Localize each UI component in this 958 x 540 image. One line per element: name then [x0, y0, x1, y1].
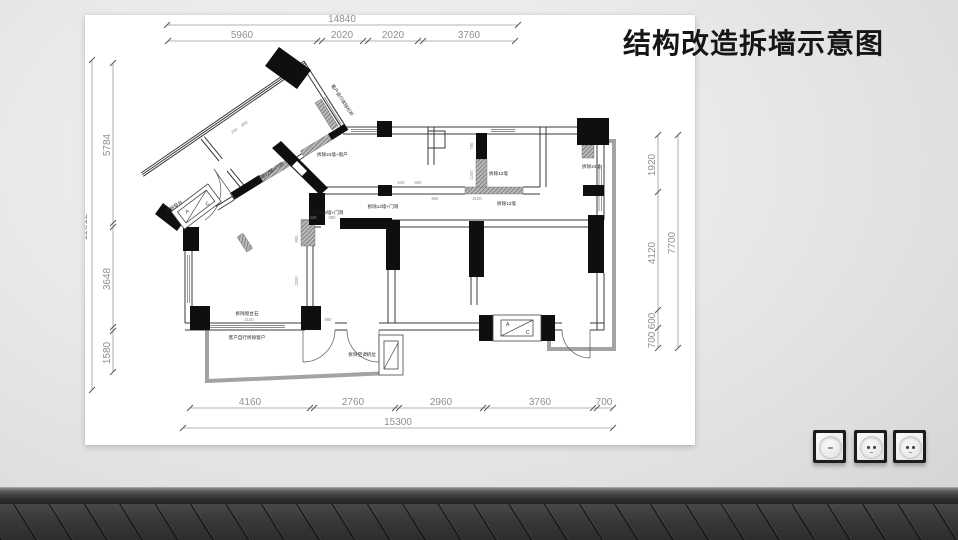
dim-left-total: 11012: [85, 213, 90, 241]
floor-plan-drawing: 14840 5960 2020 2020 3760 11012 5784 364…: [85, 15, 695, 445]
annotation-demolish-24: 拆除24墙: [582, 163, 601, 170]
dim-bottom-seg: 2960: [430, 397, 453, 408]
baseboard: [0, 487, 958, 504]
annotation-demolish-12: 拆除12墙: [489, 170, 508, 177]
dim-bottom-seg: 2760: [342, 397, 365, 408]
dim-right-seg: 700: [647, 331, 658, 348]
annotation-demolish-12-door: 拆除12墙+门洞: [255, 160, 285, 183]
inner-dim: 780: [469, 142, 474, 150]
socket-hole-icon: [873, 446, 876, 449]
socket-hole-icon: [912, 446, 915, 449]
page-title: 结构改造拆墙示意图: [623, 22, 943, 62]
annotation-client-window: 客户自行拆除窗户: [229, 334, 266, 341]
inner-dim: 600: [415, 180, 423, 185]
annotation-client-railing: 客户自行拆除栏杆: [329, 83, 355, 118]
dimmer-disc: [819, 436, 842, 459]
inner-dim: 800: [240, 119, 249, 127]
dim-bottom-seg: 700: [596, 397, 613, 408]
inner-dim: 2200: [294, 276, 299, 286]
annotation-sill-stone: 拆除窗台石: [236, 310, 259, 317]
wall-socket: [893, 430, 926, 463]
floor-plan-sheet: 14840 5960 2020 2020 3760 11012 5784 364…: [85, 15, 695, 445]
inner-dim: 880: [325, 317, 333, 322]
wall-dimmer-plate: [813, 430, 846, 463]
appliance-position-box: [379, 335, 403, 375]
inner-dim: 2100: [472, 196, 482, 201]
dim-bottom-seg: 4160: [239, 397, 262, 408]
socket-disc: [899, 436, 922, 459]
dim-top-seg: 3760: [458, 30, 481, 41]
wall-socket: [854, 430, 887, 463]
annotation-ac-position: 拆除空调机位: [348, 351, 376, 358]
dimmer-slot-icon: [828, 447, 833, 449]
outlet-plate: [896, 433, 923, 460]
socket-slot-icon: [909, 452, 912, 454]
annotation-demolish-12-door: 拆除12墙+门洞: [368, 203, 399, 210]
outlet-plate: [857, 433, 884, 460]
wood-floor: [0, 504, 958, 540]
inner-dim: 880: [329, 215, 337, 220]
outlet-plate: [816, 433, 843, 460]
dim-top-seg: 2020: [382, 30, 405, 41]
annotation-demolish-24-window: 拆除24墙+窗户: [317, 151, 348, 158]
inner-dim: 1200: [469, 170, 474, 180]
dim-bottom-seg: 3760: [529, 397, 552, 408]
dim-top-seg: 2020: [331, 30, 354, 41]
inner-dim: 440: [310, 215, 318, 220]
annotation-demolish-12: 拆除12墙: [497, 200, 516, 207]
inner-dim: 2100: [244, 317, 254, 322]
dim-right-seg: 1920: [647, 153, 658, 176]
dim-right-seg: 4120: [647, 241, 658, 264]
dim-left-seg: 3648: [102, 267, 113, 290]
dim-top-seg: 5960: [231, 30, 254, 41]
inner-dim: 240: [230, 126, 239, 134]
dim-bottom-total: 15300: [384, 417, 412, 428]
dim-left-seg: 1580: [102, 341, 113, 364]
structural-columns: [155, 47, 609, 341]
dim-top-total: 14840: [328, 15, 356, 25]
socket-disc: [860, 436, 883, 459]
inner-dim: 540: [398, 180, 406, 185]
inner-dim: 660: [432, 196, 440, 201]
socket-hole-icon: [867, 446, 870, 449]
socket-slot-icon: [870, 452, 873, 454]
dim-right-seg: 600: [647, 312, 658, 329]
ac-unit-main: A C: [493, 315, 541, 341]
inner-dim: 800: [294, 235, 299, 243]
dim-right-total: 7700: [667, 231, 678, 254]
socket-hole-icon: [906, 446, 909, 449]
ac-letter-c: C: [526, 330, 530, 336]
dim-left-seg: 5784: [102, 133, 113, 156]
